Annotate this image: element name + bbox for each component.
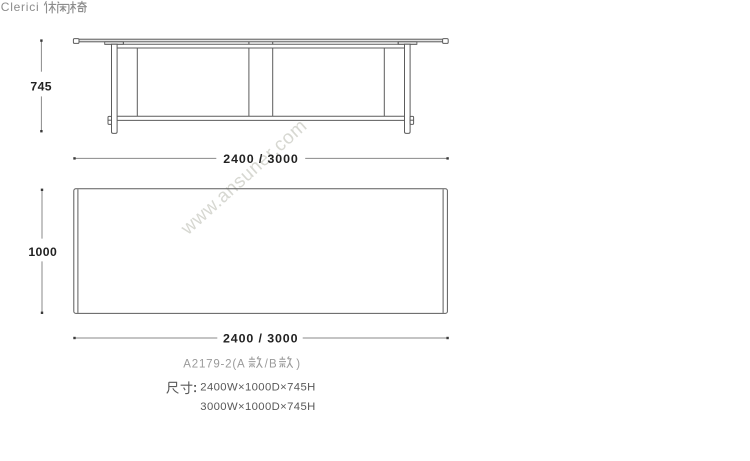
svg-text:www.ansuner.com: www.ansuner.com — [176, 115, 311, 239]
svg-text:1000: 1000 — [28, 245, 57, 259]
svg-text:2400 / 3000: 2400 / 3000 — [223, 331, 299, 345]
svg-text:A2179-2(A: A2179-2(A — [183, 358, 246, 370]
svg-text:3000W×1000D×745H: 3000W×1000D×745H — [200, 401, 316, 413]
svg-text:/B: /B — [265, 358, 278, 370]
svg-text:Clerici: Clerici — [1, 0, 40, 14]
svg-text:): ) — [296, 358, 300, 370]
svg-text:745: 745 — [30, 80, 52, 94]
svg-text:2400W×1000D×745H: 2400W×1000D×745H — [200, 382, 316, 394]
svg-text:2400 / 3000: 2400 / 3000 — [223, 152, 299, 166]
